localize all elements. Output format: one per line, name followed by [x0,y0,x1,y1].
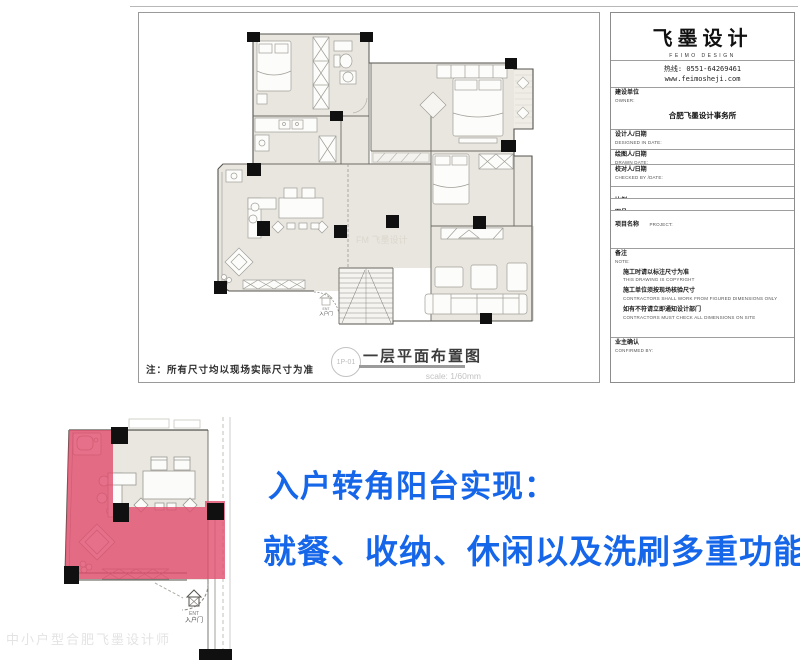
master-closet [437,65,507,78]
note-item: 施工单位须按现场核验尺寸 CONTRACTORS SHALL WORK FROM… [623,288,790,302]
row-confirm: 业主确认 CONFIRMED BY: [611,338,794,382]
cutoff-furniture [129,419,200,428]
confirm-label-en: CONFIRMED BY: [615,348,790,354]
bed-master [453,78,503,143]
hotline: 热线: 0551-64269461 [615,64,790,74]
note-item: 施工时请以标注尺寸为准 THIS DRAWING IS COPYRIGHT [623,270,790,284]
note-2-en: CONTRACTORS SHALL WORK FROM FIGURED DIME… [623,296,790,302]
closet-band [373,153,429,162]
note-3-en: CONTRACTORS MUST CHECK ALL DIMENSIONS ON… [623,315,790,321]
note-item: 如有不符请立即通知设计部门 CONTRACTORS MUST CHECK ALL… [623,307,790,321]
row-drawing-no: 图号 DRAWING NO. [611,199,794,211]
entry-label: 入户门 [319,310,333,317]
note-1-en: THIS DRAWING IS COPYRIGHT [623,277,790,283]
zoom-entry-door [155,583,208,610]
note-3-zh: 如有不符请立即通知设计部门 [623,307,790,315]
project-label: 项目名称 [615,222,639,228]
corner-watermark: 中小户型合肥飞墨设计师 [6,629,171,648]
title-block: 飞墨设计 FEIMO DESIGN 热线: 0551-64269461 www.… [610,12,795,383]
room-closet-strip [514,156,532,226]
floor-plan: FM 飞墨设计 ENT 入户门 [139,13,601,358]
contact-block: 热线: 0551-64269461 www.feimosheji.com [611,61,794,88]
confirm-label: 业主确认 [615,340,790,348]
scale-text: scale: 1/60mm [391,371,481,381]
callout-line-1: 入户转角阳台实现： [268,461,556,506]
plan-watermark: FM 飞墨设计 [356,234,408,245]
row-notes: 备注 NOTE: 施工时请以标注尺寸为准 THIS DRAWING IS COP… [611,249,794,338]
note-2-zh: 施工单位须按现场核验尺寸 [623,288,790,296]
note-1-zh: 施工时请以标注尺寸为准 [623,270,790,278]
tv-wall [441,228,503,239]
title-underline [359,365,465,368]
website: www.feimosheji.com [615,74,790,84]
row-project: 项目名称 PROJECT: [611,211,794,249]
row-checked: 校对人/日期 CHECKED BY /DATE: [611,165,794,187]
zoom-entry-label: 入户门 [185,616,203,624]
row-scale: 比例 SCALE: [611,187,794,199]
owner-label-en: OWNER: [615,98,790,104]
drawing-sheet: FM 飞墨设计 ENT 入户门 1P-01 一层平面布置图 scale: 1/6… [138,12,600,383]
project-label-en: PROJECT: [649,222,672,227]
checked-label-en: CHECKED BY /DATE: [615,175,790,181]
zoom-entry-label-en: ENT [189,611,199,617]
drawing-title: 一层平面布置图 [363,345,533,366]
drawn-label: 绘图人/日期 [615,152,790,160]
row-drawn: 绘图人/日期 DRAWN DATE: [611,150,794,165]
drawing-code-bubble: 1P-01 [331,347,361,377]
sheet-note: 注：所有尺寸均以现场实际尺寸为准 [146,362,314,376]
checked-label: 校对人/日期 [615,167,790,175]
row-owner: 建设单位 OWNER: 合肥飞墨设计事务所 [611,88,794,130]
note-label: 备注 [615,251,790,259]
owner-value: 合肥飞墨设计事务所 [615,110,790,121]
brand-block: 飞墨设计 FEIMO DESIGN [611,13,794,61]
callout-line-2: 就餐、收纳、休闲以及洗刷多重功能 [263,525,800,573]
brand-logo-en: FEIMO DESIGN [615,53,790,59]
row-designed: 设计人/日期 DESIGNED IN DATE: [611,130,794,150]
page-top-rule [130,6,798,7]
drawing-code: 1P-01 [337,359,356,366]
designed-label: 设计人/日期 [615,132,790,140]
note-label-en: NOTE: [615,259,790,265]
owner-label: 建设单位 [615,90,790,98]
balcony-zoom-view: ENT 入户门 [57,417,232,660]
designed-label-en: DESIGNED IN DATE: [615,140,790,146]
brand-logo: 飞墨设计 [615,22,790,51]
wardrobe-a [313,37,329,109]
